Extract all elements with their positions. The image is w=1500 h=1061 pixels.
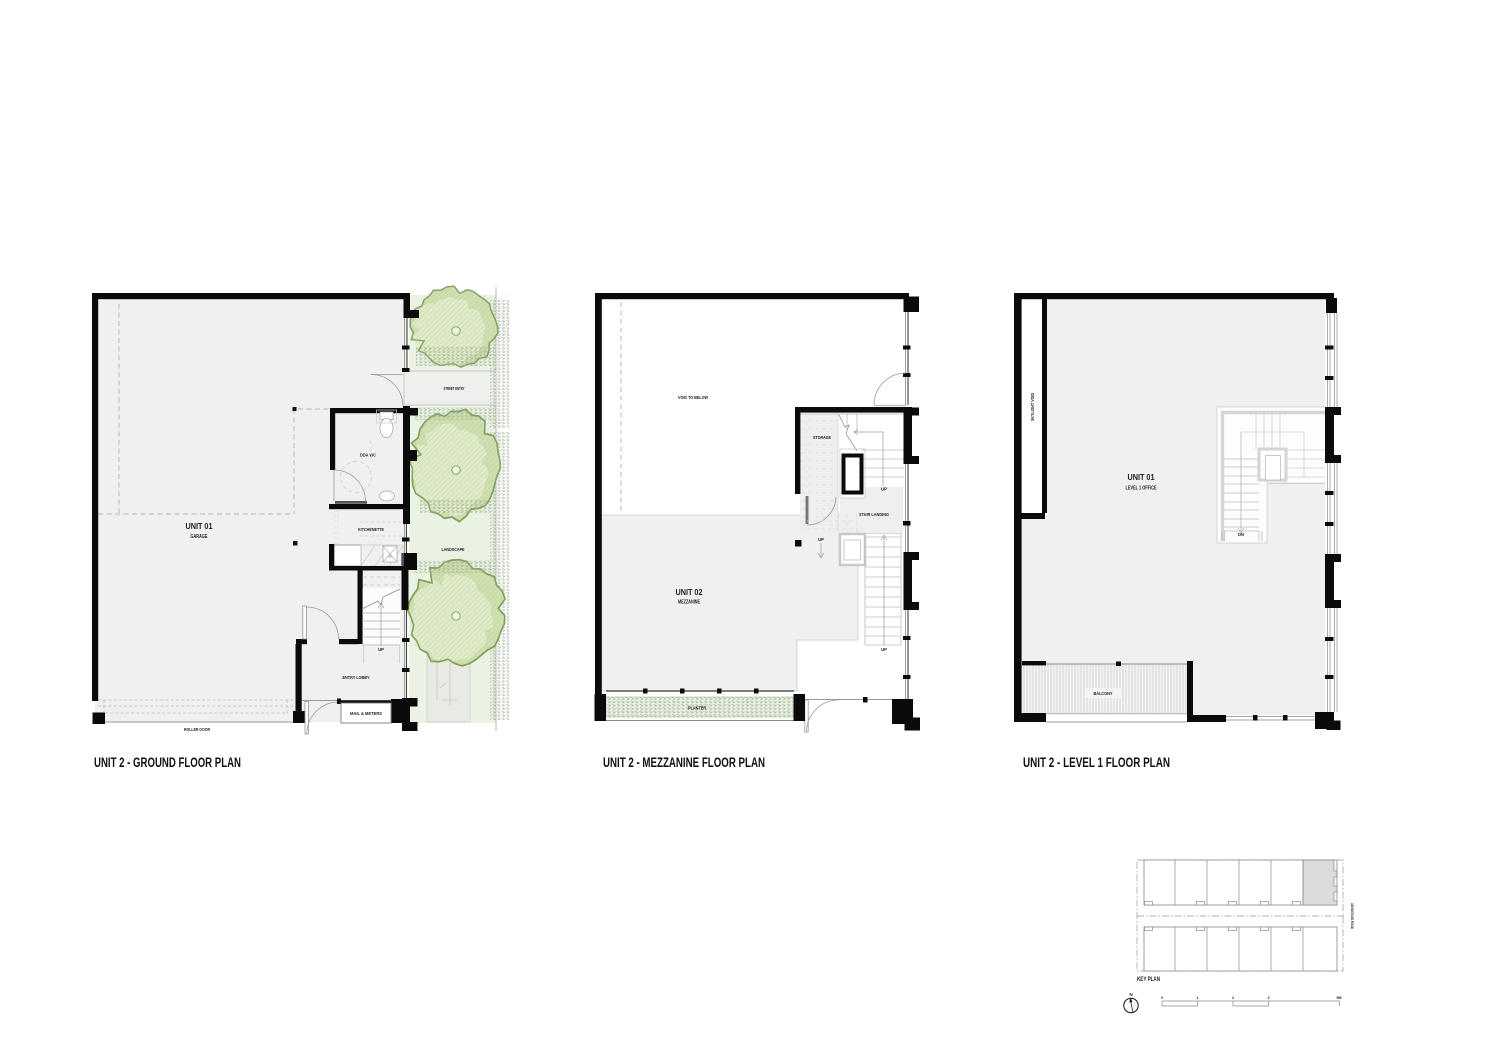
svg-text:SKYLIGHT VOID: SKYLIGHT VOID — [1030, 393, 1035, 421]
svg-text:UNIT 2 - GROUND FLOOR PLAN: UNIT 2 - GROUND FLOOR PLAN — [94, 755, 241, 770]
svg-text:ROLLER DOOR: ROLLER DOOR — [184, 727, 210, 732]
svg-text:UP: UP — [378, 647, 384, 652]
svg-text:KEY PLAN: KEY PLAN — [1137, 976, 1160, 983]
svg-text:UNIT 02: UNIT 02 — [676, 588, 703, 597]
svg-text:VOID TO BELOW: VOID TO BELOW — [678, 395, 708, 400]
svg-text:UNIT 2 - LEVEL 1 FLOOR PLAN: UNIT 2 - LEVEL 1 FLOOR PLAN — [1023, 755, 1170, 770]
svg-text:0: 0 — [1161, 996, 1163, 1000]
svg-text:ADVANTAGE ROAD: ADVANTAGE ROAD — [1350, 903, 1354, 929]
svg-text:STAIR LANDING: STAIR LANDING — [859, 512, 889, 517]
svg-text:UP: UP — [818, 537, 824, 542]
svg-text:LEVEL 1 OFFICE: LEVEL 1 OFFICE — [1126, 486, 1158, 492]
svg-text:PLANTER: PLANTER — [688, 706, 706, 711]
svg-text:MAIL & METERS: MAIL & METERS — [350, 711, 382, 716]
svg-text:BALCONY: BALCONY — [1094, 691, 1113, 696]
svg-text:1: 1 — [1197, 996, 1199, 1000]
svg-text:MEZZANINE: MEZZANINE — [678, 600, 700, 606]
svg-text:LANDSCAPE: LANDSCAPE — [442, 547, 465, 552]
svg-text:UNIT 01: UNIT 01 — [1128, 473, 1155, 482]
svg-text:5M: 5M — [1337, 996, 1342, 1000]
svg-text:DN: DN — [1238, 532, 1244, 537]
svg-text:STREET ENTRY: STREET ENTRY — [444, 386, 465, 391]
svg-text:UP: UP — [881, 647, 887, 652]
svg-text:STORAGE: STORAGE — [813, 435, 831, 440]
svg-text:UNIT 01: UNIT 01 — [186, 522, 213, 531]
svg-text:GARAGE: GARAGE — [191, 534, 209, 540]
svg-text:3: 3 — [1268, 996, 1270, 1000]
svg-text:DDA WC: DDA WC — [360, 453, 376, 458]
svg-text:UNIT 2 - MEZZANINE FLOOR PLAN: UNIT 2 - MEZZANINE FLOOR PLAN — [603, 755, 765, 770]
svg-text:KITCHENETTE: KITCHENETTE — [358, 527, 384, 532]
svg-text:2: 2 — [1232, 996, 1234, 1000]
svg-text:UP: UP — [881, 487, 887, 492]
svg-text:ENTRY LOBBY: ENTRY LOBBY — [343, 675, 370, 680]
